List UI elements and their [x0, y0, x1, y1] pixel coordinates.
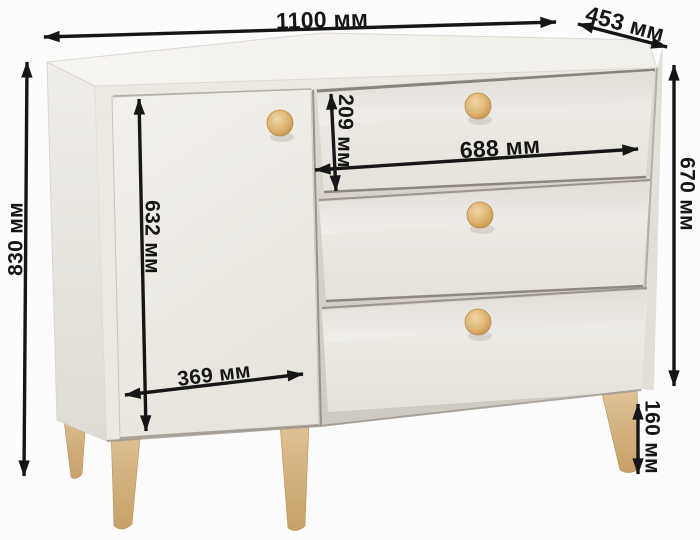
dim-drawer-height-label: 209 мм [334, 94, 356, 168]
furniture-dimension-diagram: 1100 мм 453 мм 830 мм 632 мм 209 мм 688 … [0, 0, 700, 540]
leg-front-left [111, 427, 141, 529]
drawer-3-knob [465, 309, 491, 335]
leg-front-center [280, 421, 309, 531]
leg-front-right [601, 389, 640, 473]
door-knob [267, 110, 293, 136]
drawer-2-knob [467, 202, 493, 228]
dim-drawer-width-label: 688 мм [459, 134, 541, 163]
dim-carcass-height-label: 670 мм [677, 157, 698, 231]
dresser-render [0, 0, 700, 540]
dim-height-label: 830 мм [6, 202, 27, 276]
dim-leg-height-label: 160 мм [642, 400, 663, 474]
drawer-1-knob [465, 93, 491, 119]
dim-width-label: 1100 мм [275, 7, 368, 33]
dim-door-height-label: 632 мм [142, 200, 163, 274]
